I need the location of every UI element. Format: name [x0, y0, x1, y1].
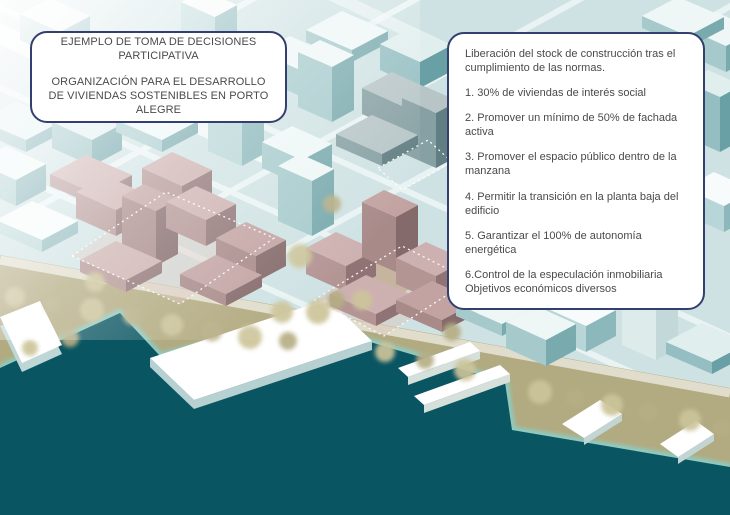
- rule-item-3: 3. Promover el espacio público dentro de…: [465, 150, 687, 178]
- title-line-2: ORGANIZACIÓN PARA EL DESARROLLO DE VIVIE…: [44, 76, 273, 118]
- title-line-1: EJEMPLO DE TOMA DE DECISIONES PARTICIPAT…: [44, 36, 273, 64]
- rules-box: Liberación del stock de construcción tra…: [447, 32, 705, 310]
- slide: EJEMPLO DE TOMA DE DECISIONES PARTICIPAT…: [0, 0, 730, 515]
- rule-item-5: 5. Garantizar el 100% de autonomía energ…: [465, 229, 687, 257]
- title-box: EJEMPLO DE TOMA DE DECISIONES PARTICIPAT…: [30, 31, 287, 123]
- rule-item-4: 4. Permitir la transición en la planta b…: [465, 190, 687, 218]
- rule-item-6: 6.Control de la especulación inmobiliari…: [465, 268, 687, 296]
- rule-item-2: 2. Promover un mínimo de 50% de fachada …: [465, 111, 687, 139]
- rule-item-1: 1. 30% de viviendas de interés social: [465, 86, 687, 100]
- rules-intro: Liberación del stock de construcción tra…: [465, 47, 687, 75]
